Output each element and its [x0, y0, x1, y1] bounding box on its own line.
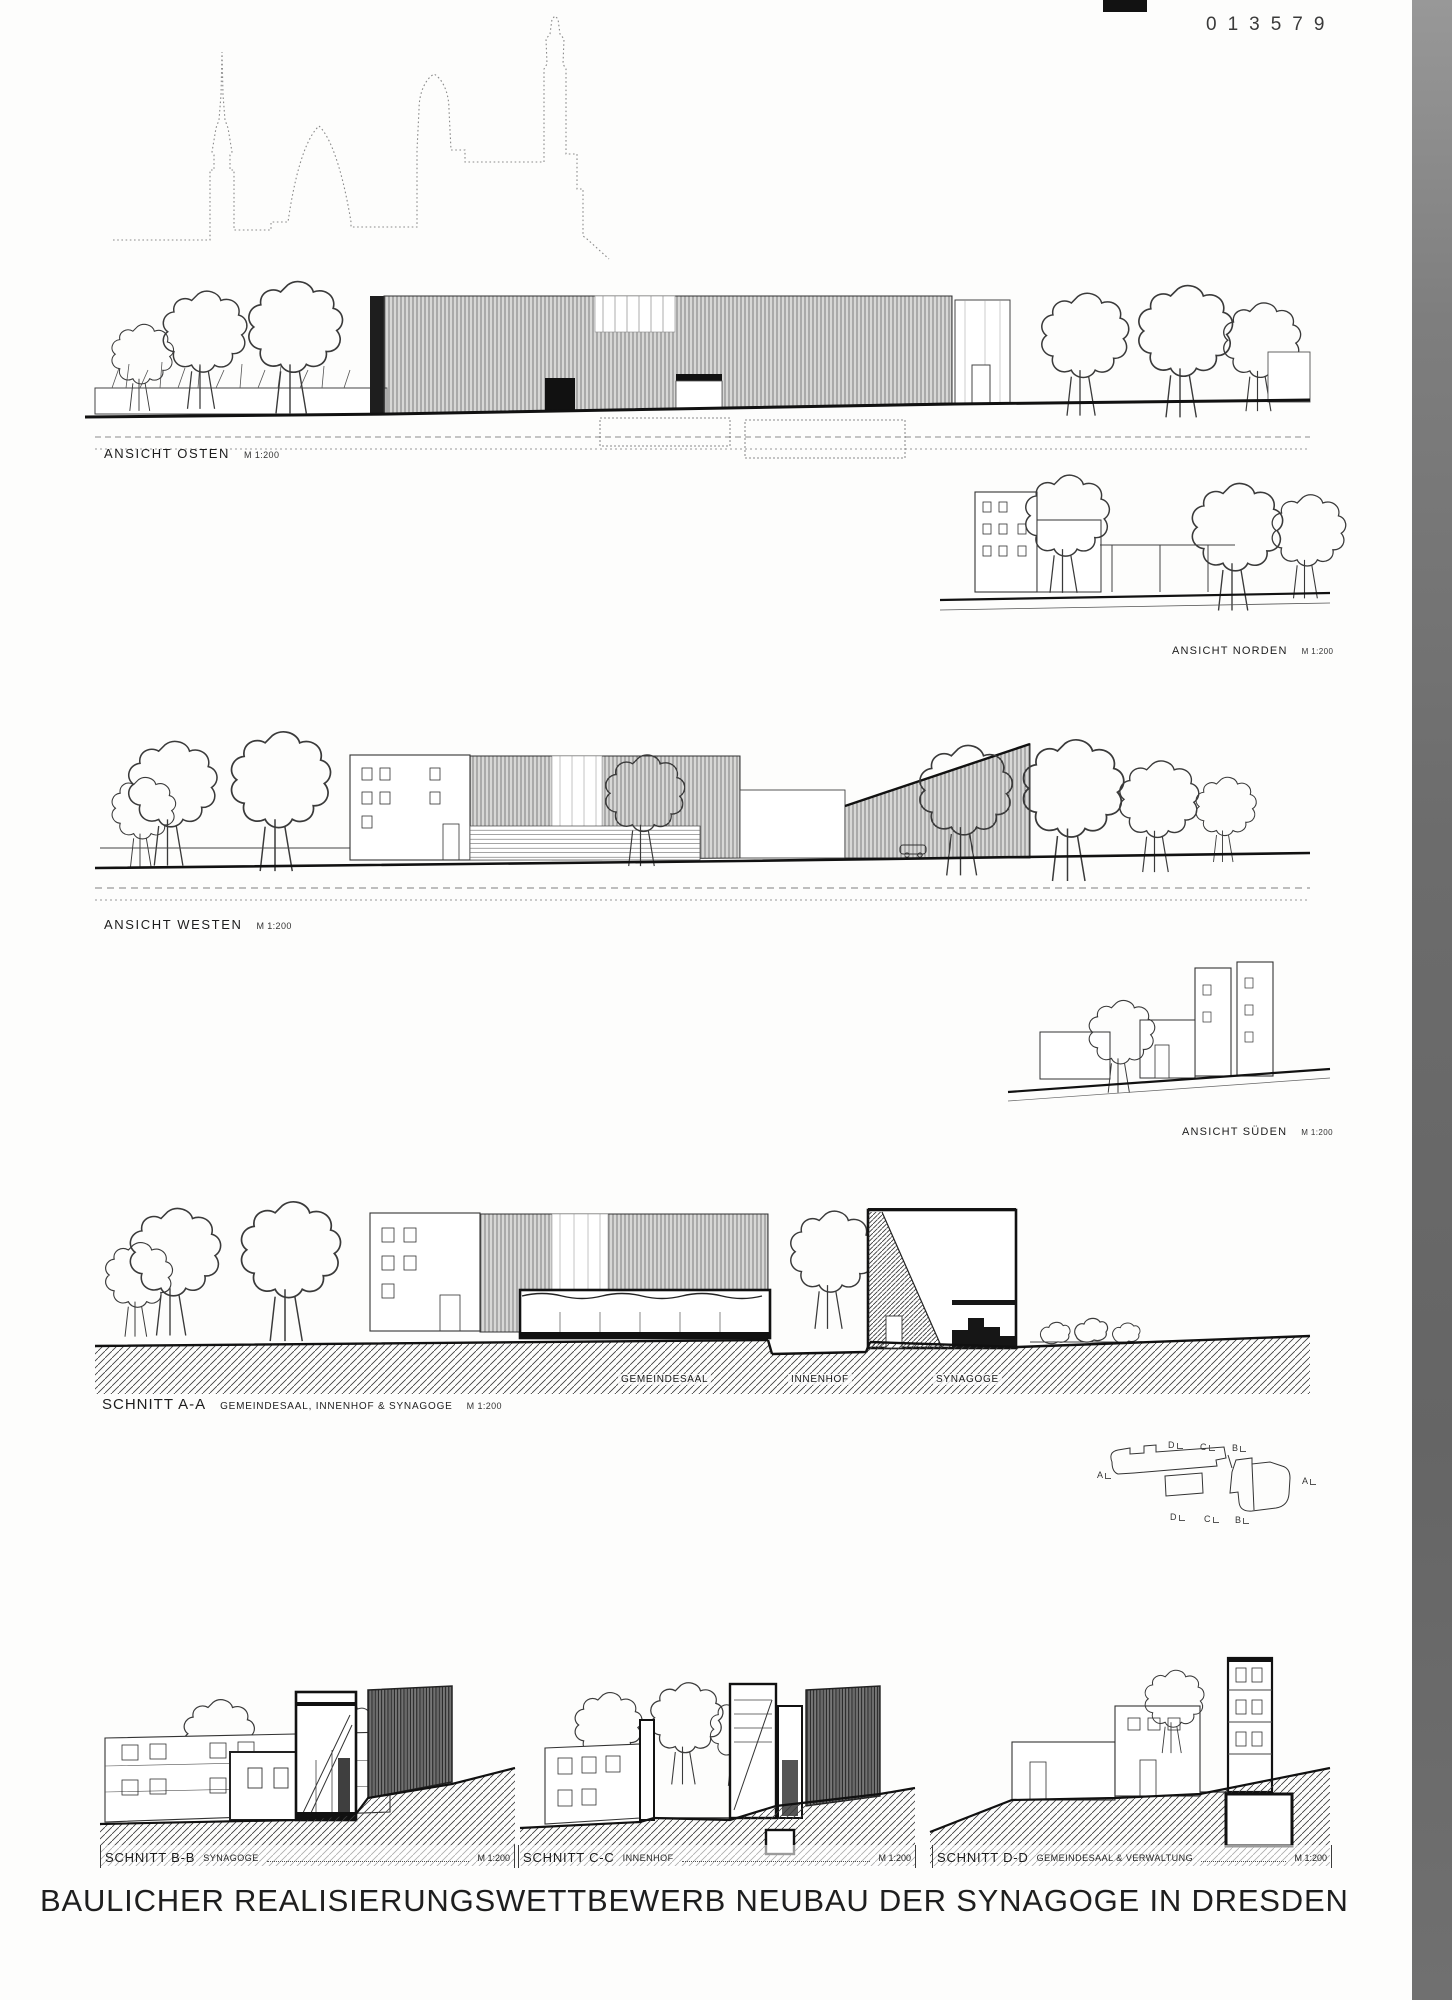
- dotted-leader: [1201, 1861, 1286, 1862]
- key-plan-marker-a-right: A: [1302, 1476, 1316, 1486]
- footprint-inner-line: [1252, 1464, 1254, 1510]
- key-plan: [1111, 1445, 1290, 1511]
- key-plan-marker-b-bottom: B: [1235, 1515, 1249, 1525]
- roof-slab: [1228, 1658, 1272, 1662]
- drawing-title: ANSICHT SÜDEN: [1182, 1126, 1287, 1138]
- drawing-scale: M 1:200: [1302, 647, 1334, 656]
- tower-slab: [1195, 968, 1231, 1076]
- tower-section: [1228, 1658, 1272, 1792]
- tree: [1196, 777, 1256, 862]
- building: [975, 492, 1037, 592]
- section-marker-tick: [1243, 1518, 1249, 1524]
- competition-board: 013579 ANSICHT OSTEN M 1:200 ANSICHT NOR…: [0, 0, 1452, 2000]
- drawing-title: ANSICHT OSTEN: [104, 446, 230, 461]
- dresden-skyline-silhouette: [113, 16, 609, 259]
- floor-slab: [520, 1332, 770, 1338]
- dotted-leader: [682, 1861, 871, 1862]
- opening-lintel: [676, 374, 722, 381]
- section-marker-tick: [1240, 1446, 1246, 1452]
- shrub: [1113, 1323, 1140, 1343]
- tree: [232, 732, 331, 871]
- board-title: BAULICHER REALISIERUNGSWETTBEWERB NEUBAU…: [40, 1883, 1355, 1919]
- label-schnitt-dd: SCHNITT D-D GEMEINDESAAL & VERWALTUNG M …: [932, 1845, 1332, 1868]
- east-elevation-drawing: [85, 282, 1310, 458]
- tower-slab: [1237, 962, 1273, 1076]
- bimah-block: [338, 1758, 350, 1812]
- key-plan-marker-d-top: D: [1168, 1440, 1183, 1450]
- low-wing: [1012, 1742, 1115, 1800]
- drawing-title: SCHNITT D-D: [937, 1847, 1029, 1868]
- shrub: [1075, 1318, 1108, 1342]
- scan-artifact-top: [1103, 0, 1147, 12]
- tree: [1192, 484, 1282, 611]
- section-marker-tick: [1177, 1443, 1183, 1449]
- tree: [1023, 740, 1123, 881]
- gemeindesaal-footprint: [1165, 1473, 1203, 1496]
- side-door: [972, 365, 990, 403]
- admin-elevation: [370, 1213, 480, 1331]
- synagogue-section: [868, 1208, 1016, 1348]
- shrub: [1040, 1322, 1070, 1343]
- key-plan-marker-c-top: C: [1200, 1442, 1215, 1452]
- zone-label-gemeindesaal: GEMEINDESAAL: [618, 1374, 711, 1385]
- foyer-section: [230, 1752, 300, 1820]
- drawing-scale: M 1:200: [477, 1848, 510, 1868]
- tree: [1139, 286, 1233, 418]
- section-cc-drawing: [520, 1683, 915, 1866]
- basement-outline: [745, 420, 905, 458]
- garden-wall: [1268, 352, 1310, 402]
- synagogue-hall-section: [296, 1692, 356, 1820]
- pergola: [1100, 545, 1235, 592]
- south-elevation-drawing: [1008, 962, 1330, 1101]
- gemeindesaal-section: [520, 1290, 770, 1338]
- section-bb-drawing: [100, 1686, 515, 1866]
- court-wall: [740, 790, 845, 858]
- label-schnitt-cc: SCHNITT C-C INNENHOF M 1:200: [518, 1845, 916, 1868]
- court-wall-elevation: [545, 1744, 640, 1824]
- admin-building: [350, 755, 470, 860]
- key-plan-marker-a-left: A: [1097, 1470, 1111, 1480]
- drawing-scale: M 1:200: [1294, 1848, 1327, 1868]
- drawing-subtitle: SYNAGOGE: [203, 1848, 259, 1868]
- drawings-canvas: [0, 0, 1452, 2000]
- drawing-title: SCHNITT B-B: [105, 1847, 195, 1868]
- drawing-title: ANSICHT NORDEN: [1172, 645, 1288, 657]
- curtain-wall-dark: [368, 1686, 452, 1798]
- sunken-room-outline: [1226, 1794, 1292, 1846]
- opening: [676, 381, 722, 409]
- tree: [129, 741, 217, 865]
- key-plan-marker-d-bottom: D: [1170, 1512, 1185, 1522]
- ground-line-2: [940, 603, 1330, 610]
- dark-wall-band: [370, 296, 384, 414]
- tree: [130, 1209, 220, 1336]
- section-marker-tick: [1105, 1473, 1111, 1479]
- curtain-wall-dark: [806, 1686, 880, 1806]
- label-ansicht-westen: ANSICHT WESTEN M 1:200: [104, 917, 292, 932]
- drawing-scale: M 1:200: [256, 921, 291, 931]
- synagogue-footprint: [1230, 1458, 1290, 1511]
- section-aa-drawing: [95, 1202, 1310, 1394]
- section-marker-tick: [1209, 1445, 1215, 1451]
- section-marker-tick: [1310, 1479, 1316, 1485]
- roof-slab: [296, 1702, 356, 1706]
- drawing-subtitle: INNENHOF: [623, 1848, 674, 1868]
- dotted-leader: [267, 1861, 470, 1862]
- masonry-texture: [470, 826, 700, 860]
- tree: [791, 1211, 875, 1329]
- tree: [112, 777, 176, 866]
- tree: [1042, 293, 1129, 415]
- west-elevation-drawing: [95, 732, 1310, 900]
- key-plan-marker-c-bottom: C: [1204, 1514, 1219, 1524]
- zone-label-innenhof: INNENHOF: [788, 1374, 852, 1385]
- tree: [1272, 495, 1346, 598]
- label-ansicht-norden: ANSICHT NORDEN M 1:200: [1172, 645, 1333, 657]
- ground-line: [940, 593, 1330, 600]
- label-ansicht-sueden: ANSICHT SÜDEN M 1:200: [1182, 1126, 1333, 1138]
- north-elevation-drawing: [940, 475, 1346, 610]
- key-plan-marker-b-top: B: [1232, 1443, 1246, 1453]
- drawing-subtitle: GEMEINDESAAL, INNENHOF & SYNAGOGE: [220, 1401, 453, 1412]
- drawing-title: ANSICHT WESTEN: [104, 917, 242, 932]
- door: [1155, 1045, 1169, 1078]
- section-marker-tick: [1213, 1517, 1219, 1523]
- drawing-scale: M 1:200: [244, 450, 279, 460]
- label-ansicht-osten: ANSICHT OSTEN M 1:200: [104, 446, 279, 461]
- scan-edge-strip: [1412, 0, 1452, 2000]
- drawing-scale: M 1:200: [878, 1848, 911, 1868]
- section-dd-drawing: [930, 1658, 1330, 1866]
- page-number: 013579: [1206, 14, 1335, 36]
- wall-section: [640, 1720, 654, 1820]
- footprint-link-line: [1228, 1455, 1232, 1468]
- section-marker-tick: [1179, 1515, 1185, 1521]
- drawing-title: SCHNITT A-A: [102, 1396, 206, 1413]
- gallery-slab: [952, 1300, 1016, 1305]
- tree: [651, 1683, 723, 1785]
- label-schnitt-bb: SCHNITT B-B SYNAGOGE M 1:200: [100, 1845, 515, 1868]
- low-building: [1040, 1032, 1110, 1079]
- tree: [242, 1202, 341, 1341]
- basement-outline: [600, 418, 730, 446]
- drawing-scale: M 1:200: [1301, 1128, 1333, 1137]
- drawing-subtitle: GEMEINDESAAL & VERWALTUNG: [1037, 1848, 1194, 1868]
- drawing-scale: M 1:200: [467, 1401, 502, 1411]
- stair-tower-section: [730, 1684, 776, 1818]
- entrance-opening: [545, 378, 575, 412]
- drawing-title: SCHNITT C-C: [523, 1847, 615, 1868]
- label-schnitt-aa: SCHNITT A-A GEMEINDESAAL, INNENHOF & SYN…: [102, 1396, 502, 1413]
- zone-label-synagoge: SYNAGOGE: [933, 1374, 1002, 1385]
